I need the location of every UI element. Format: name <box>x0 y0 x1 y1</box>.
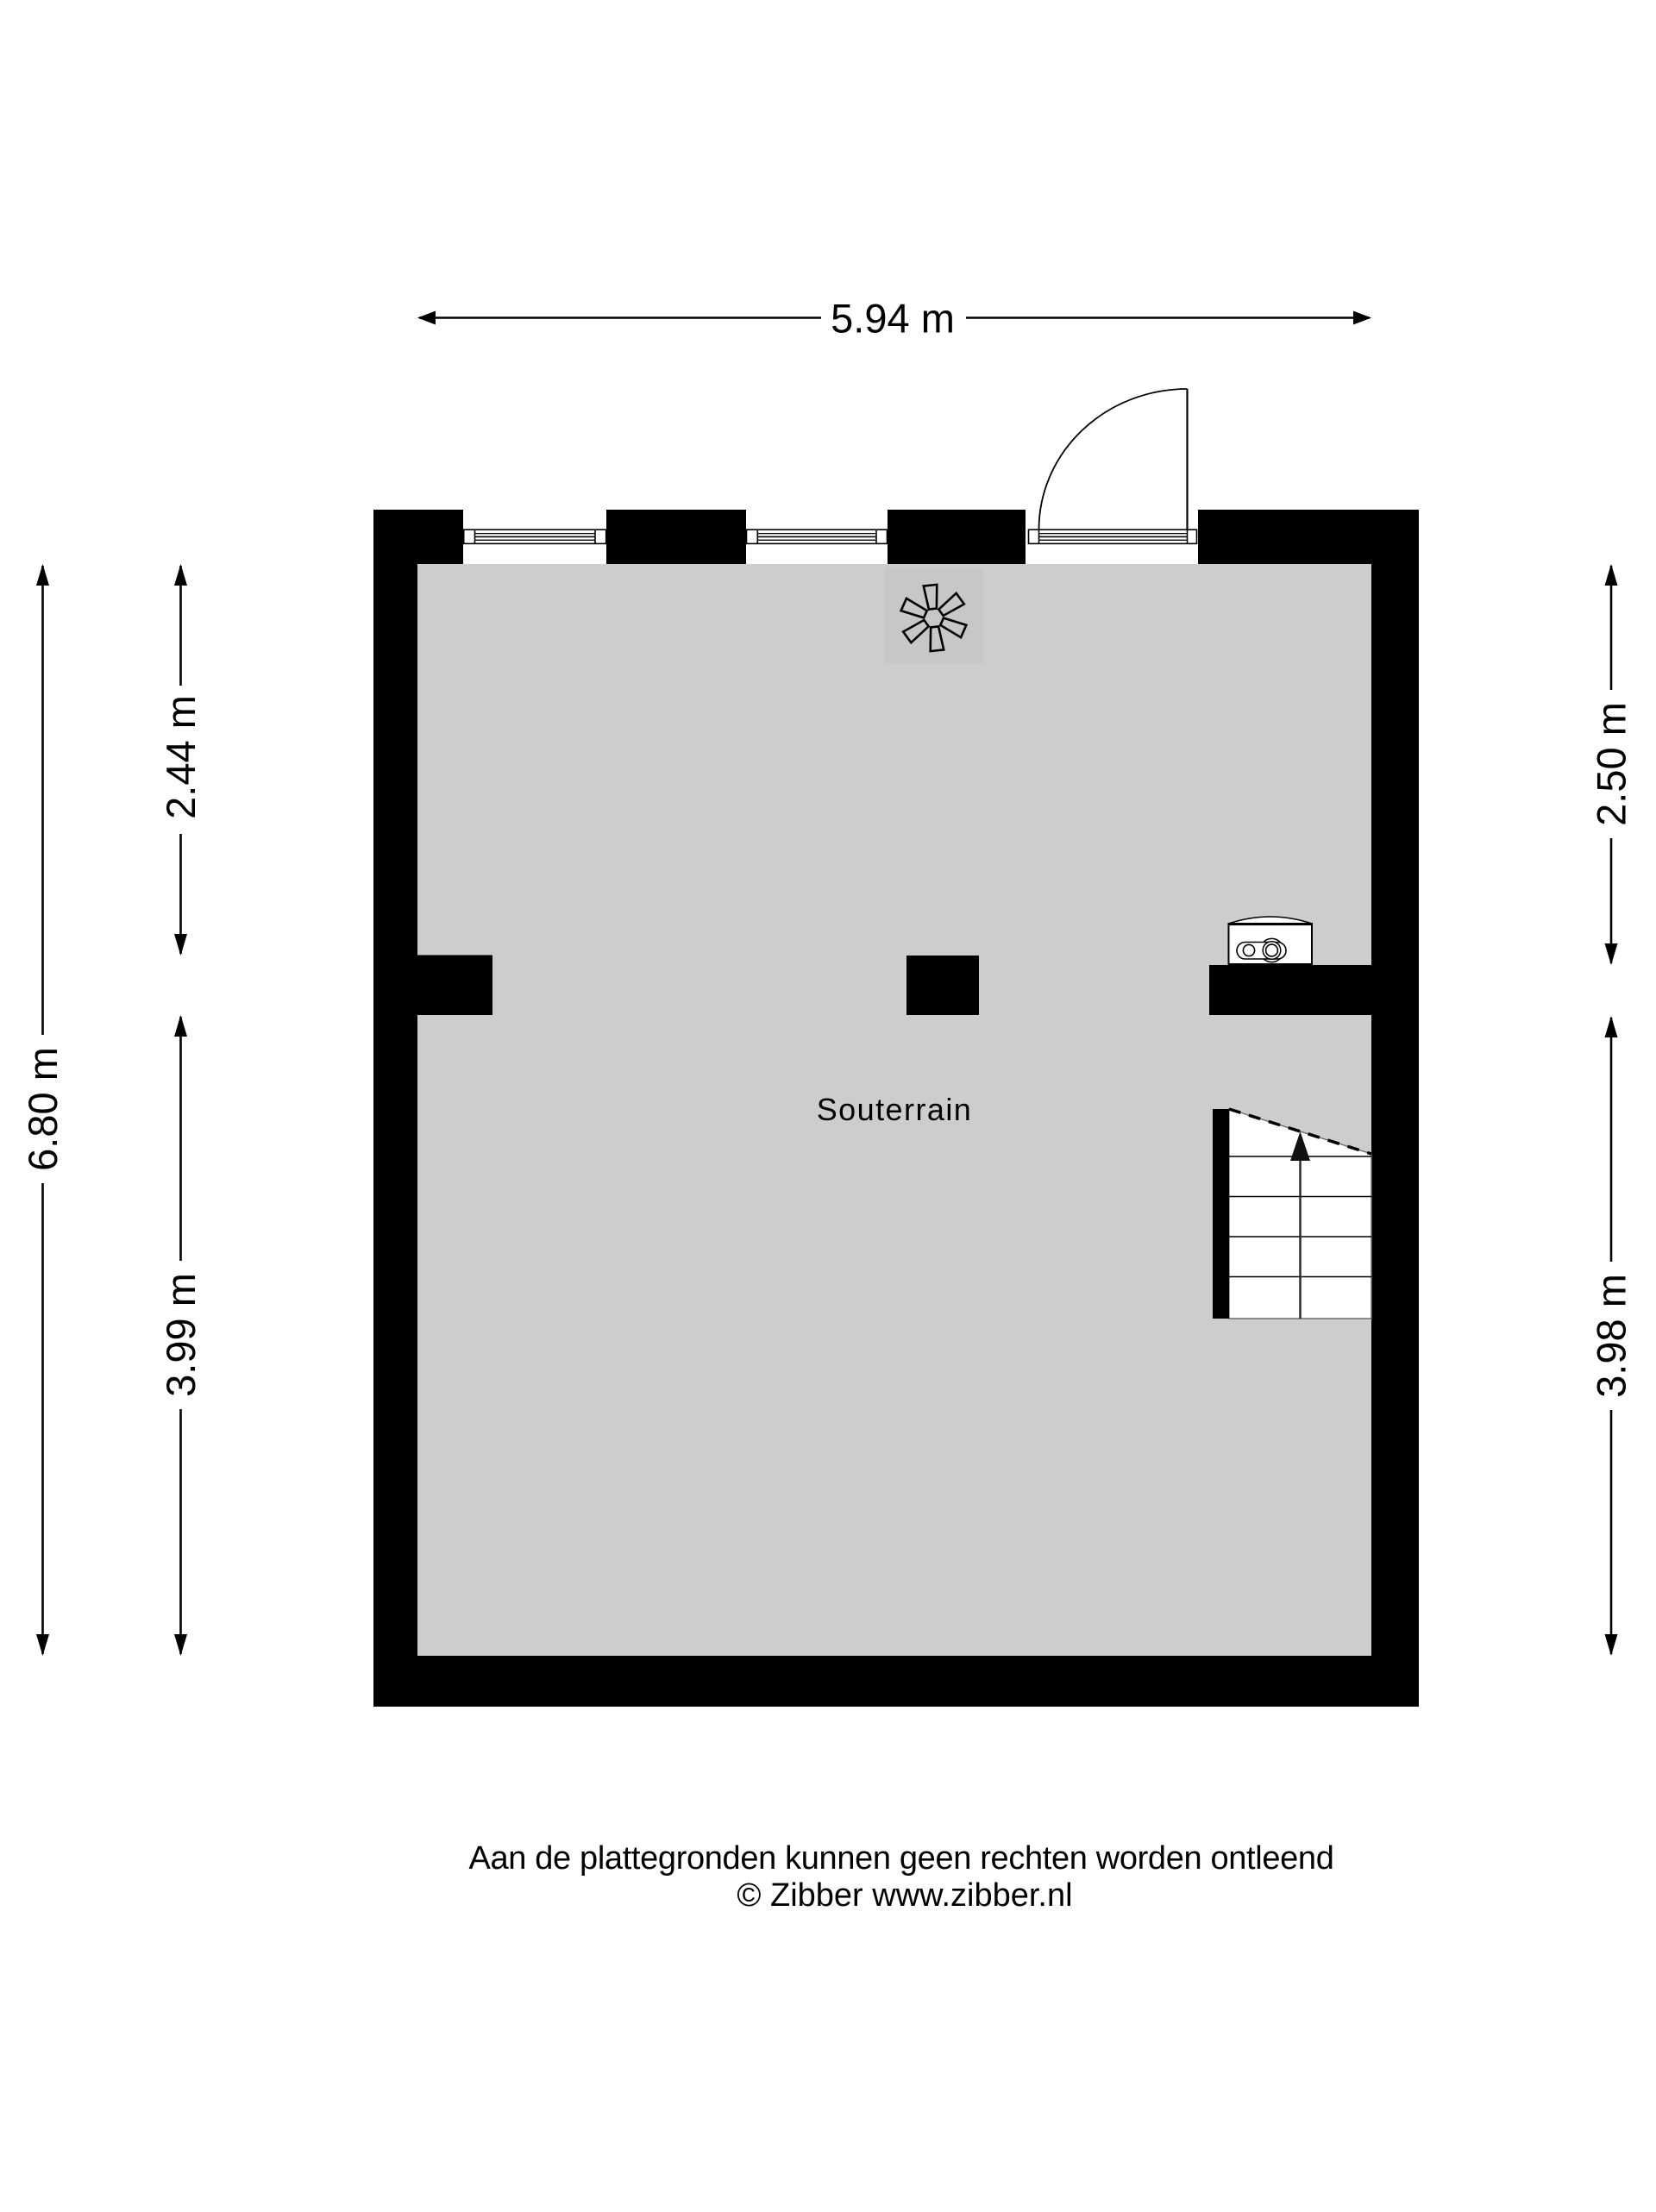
svg-text:Aan de plattegronden kunnen ge: Aan de plattegronden kunnen geen rechten… <box>469 1840 1334 1877</box>
svg-text:© Zibber www.zibber.nl: © Zibber www.zibber.nl <box>737 1877 1072 1914</box>
svg-text:3.99 m: 3.99 m <box>158 1273 204 1397</box>
svg-text:2.44 m: 2.44 m <box>158 695 204 819</box>
svg-text:6.80 m: 6.80 m <box>20 1047 66 1171</box>
svg-text:2.50 m: 2.50 m <box>1589 702 1634 826</box>
svg-text:3.98 m: 3.98 m <box>1589 1274 1634 1398</box>
svg-text:5.94 m: 5.94 m <box>831 296 955 342</box>
svg-text:Souterrain: Souterrain <box>817 1092 973 1127</box>
